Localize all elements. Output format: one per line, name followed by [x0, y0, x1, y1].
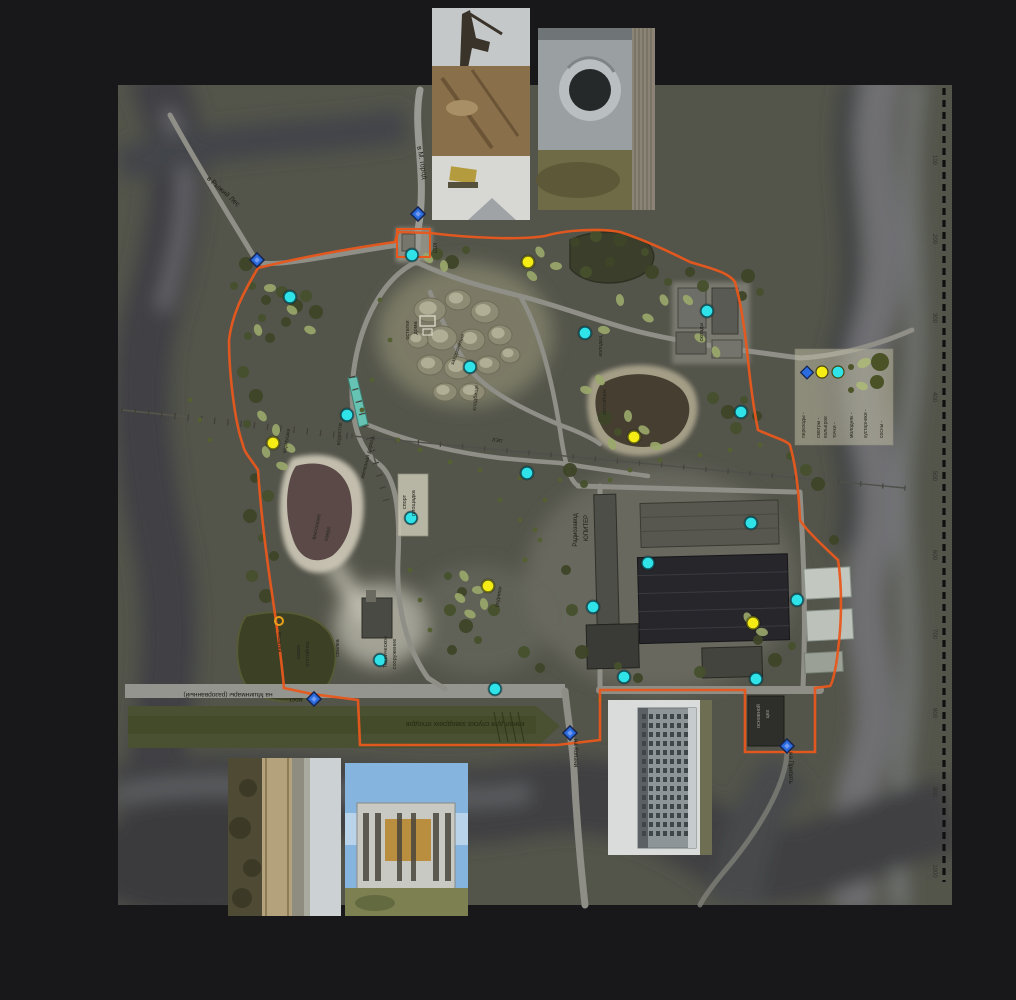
pine-tree	[243, 420, 251, 428]
pine-tree	[685, 267, 695, 277]
photo-factory-building	[608, 700, 712, 855]
legend-label: кустарники -	[863, 409, 869, 438]
poi-marker-cyan	[618, 671, 630, 683]
map-label: Радиозавод	[573, 513, 579, 547]
young-growth	[198, 418, 203, 423]
pine-tree	[444, 572, 452, 580]
young-growth	[538, 538, 543, 543]
young-growth	[188, 398, 193, 403]
pine-tree	[444, 604, 456, 616]
pine-tree	[535, 663, 545, 673]
legend-label: сосны -	[879, 420, 885, 438]
map-label: свалка	[335, 638, 341, 656]
pine-tree	[740, 396, 748, 404]
pine-tree	[753, 635, 763, 645]
map-poster: переходы -смотры -вольеровточки -молодня…	[0, 0, 1016, 1000]
legend-label: переходы -	[801, 412, 807, 438]
map-label: озеро	[296, 645, 302, 660]
pine-tree	[605, 257, 615, 267]
pine-tree	[258, 314, 266, 322]
pine-tree	[563, 463, 577, 477]
young-growth	[758, 443, 763, 448]
young-growth	[728, 448, 733, 453]
pine-tree	[474, 636, 482, 644]
pine-tree	[590, 230, 602, 242]
map-label: цех	[765, 709, 771, 718]
pine-tree	[756, 288, 764, 296]
poi-marker-cyan	[701, 305, 713, 317]
poi-marker-cyan	[341, 409, 353, 421]
pine-tree	[741, 269, 755, 283]
pine-tree	[249, 389, 263, 403]
ruler-value: 200	[931, 234, 937, 245]
pine-tree	[800, 464, 812, 476]
young-growth	[428, 628, 433, 633]
pine-tree	[697, 280, 709, 292]
young-growth	[658, 458, 663, 463]
legend-label: смотры -	[816, 417, 822, 438]
photo-industrial-ruins	[432, 8, 530, 220]
pine-tree	[244, 332, 252, 340]
poi-marker-cyan	[406, 249, 418, 261]
poi-marker-cyan	[464, 361, 476, 373]
pine-tree	[614, 662, 622, 670]
poi-marker-cyan	[579, 327, 591, 339]
pine-tree	[566, 604, 578, 616]
map-label: склады	[699, 323, 705, 342]
pine-tree	[664, 278, 672, 286]
poi-marker-cyan	[745, 517, 757, 529]
ruler-value: 400	[931, 392, 937, 403]
ruler-value: 600	[931, 550, 937, 561]
poi-marker-yellow	[628, 431, 640, 443]
bush	[264, 284, 276, 292]
pine-tree	[580, 266, 592, 278]
pine-tree	[447, 645, 457, 655]
map-label: сооружение	[392, 639, 398, 670]
site-map-svg: переходы -смотры -вольеровточки -молодня…	[0, 0, 1016, 1000]
poi-marker-yellow	[267, 437, 279, 449]
pine-tree	[645, 265, 659, 279]
young-growth	[628, 468, 633, 473]
legend-yellow-circle	[816, 366, 828, 378]
main-workshop-south	[748, 696, 784, 746]
map-label: ЮПИТЕР	[584, 515, 590, 541]
poi-marker-yellow	[522, 256, 534, 268]
young-growth	[396, 438, 401, 443]
pine-tree	[570, 237, 580, 247]
map-label: колодец	[598, 335, 604, 357]
poi-marker-cyan	[284, 291, 296, 303]
photo-ruined-building	[345, 763, 468, 916]
pine-tree	[265, 333, 275, 343]
map-label: отстойник	[601, 389, 608, 415]
pine-tree	[281, 317, 291, 327]
pine-tree	[829, 535, 839, 545]
ruler-value: 1000	[931, 864, 937, 878]
poi-marker-cyan	[521, 467, 533, 479]
young-growth	[608, 478, 613, 483]
map-label: Техническое	[383, 636, 389, 668]
map-label: на Мшинмары (разорванный)	[183, 691, 272, 699]
legend-label: вольеров	[823, 416, 829, 438]
young-growth	[388, 338, 393, 343]
legend-label: точки -	[832, 422, 838, 438]
young-growth	[208, 438, 213, 443]
map-label: калитка	[277, 631, 283, 652]
pine-tree	[613, 233, 627, 247]
ruler-value: 900	[931, 787, 937, 798]
pine-tree	[309, 305, 323, 319]
pine-tree	[246, 570, 258, 582]
map-label: на Копачи	[572, 739, 578, 767]
pine-tree	[261, 295, 271, 305]
young-growth	[478, 468, 483, 473]
poi-marker-cyan	[642, 557, 654, 569]
young-growth	[378, 298, 383, 303]
young-growth	[418, 448, 423, 453]
pine-tree	[262, 490, 274, 502]
pine-tree	[561, 565, 571, 575]
young-growth	[533, 528, 538, 533]
map-label: дома	[413, 321, 419, 335]
map-label: мост	[289, 696, 302, 702]
young-growth	[418, 598, 423, 603]
poi-marker-cyan	[489, 683, 501, 695]
ruler-value: 500	[931, 471, 937, 482]
pine-tree	[459, 619, 473, 633]
map-label: канал для спуска заводских отходов	[406, 720, 525, 727]
poi-marker-cyan	[791, 594, 803, 606]
pine-tree	[518, 646, 530, 658]
photo-canal-road	[228, 758, 341, 916]
pine-tree	[707, 392, 719, 404]
pine-tree	[243, 509, 257, 523]
pine-tree	[580, 480, 588, 488]
young-growth	[498, 498, 503, 503]
poi-marker-yellow	[482, 580, 494, 592]
pine-tree	[788, 642, 796, 650]
pine-tree	[811, 477, 825, 491]
pine-tree	[641, 248, 649, 256]
legend-label: молодняк -	[849, 412, 855, 438]
map-label: спорт	[402, 494, 408, 509]
pine-tree	[300, 290, 312, 302]
pine-tree	[230, 282, 238, 290]
legend-cyan-circle	[832, 366, 844, 378]
pine-tree	[269, 551, 279, 561]
young-growth	[370, 378, 375, 383]
pine-tree	[730, 422, 742, 434]
poi-marker-cyan	[750, 673, 762, 685]
young-growth	[523, 558, 528, 563]
young-growth	[698, 453, 703, 458]
pine-tree	[768, 653, 782, 667]
map-label: отстойник	[304, 641, 311, 667]
young-growth	[360, 408, 365, 413]
young-growth	[543, 498, 548, 503]
photo-culvert-pipe	[536, 28, 655, 210]
ruler-value: 300	[931, 313, 937, 324]
poi-marker-yellow	[747, 617, 759, 629]
young-growth	[408, 568, 413, 573]
map-label: основной	[755, 704, 762, 728]
young-growth	[518, 518, 523, 523]
map-label: КПП	[431, 243, 437, 254]
young-growth	[448, 460, 453, 465]
poi-marker-cyan	[735, 406, 747, 418]
pine-tree	[575, 645, 589, 659]
ruler-value: 700	[931, 629, 937, 640]
map-label: остатки	[405, 320, 411, 339]
pine-tree	[237, 366, 249, 378]
legend: переходы -смотры -вольеровточки -молодня…	[795, 349, 893, 445]
pine-tree	[694, 666, 706, 678]
map-label: на Припять	[787, 752, 793, 784]
pine-tree	[614, 428, 622, 436]
ruler-value: 800	[931, 708, 937, 719]
ruler-value: 100	[931, 155, 937, 166]
pine-tree	[633, 673, 643, 683]
poi-marker-cyan	[587, 601, 599, 613]
young-growth	[558, 478, 563, 483]
pine-tree	[721, 405, 735, 419]
map-label: площадка	[411, 489, 417, 516]
pine-tree	[462, 246, 470, 254]
